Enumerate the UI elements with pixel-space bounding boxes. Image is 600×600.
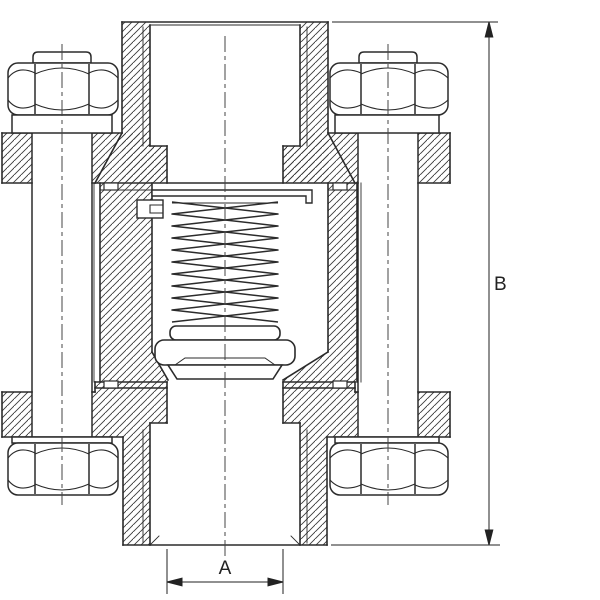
washer-bottom-right xyxy=(335,437,439,443)
dimension-label-B: B xyxy=(494,274,507,295)
hex-nut-top-left xyxy=(8,63,118,115)
gasket-tab xyxy=(104,381,118,388)
hex-nut-bottom-right xyxy=(330,443,448,495)
arrowhead-left xyxy=(167,578,182,586)
hex-nut-bottom-left xyxy=(8,443,118,495)
gasket-tab xyxy=(333,183,347,190)
gasket-tab xyxy=(333,381,347,388)
dimension-label-A: A xyxy=(219,558,232,579)
arrowhead-up xyxy=(485,22,493,37)
hex-nut-top-right xyxy=(330,63,448,115)
gasket-tab xyxy=(104,183,118,190)
washer-top-right xyxy=(335,115,439,133)
drawing-canvas: B A xyxy=(0,0,600,600)
arrowhead-down xyxy=(485,530,493,545)
arrowhead-right xyxy=(268,578,283,586)
valve-cross-section-drawing: B A xyxy=(0,0,600,600)
